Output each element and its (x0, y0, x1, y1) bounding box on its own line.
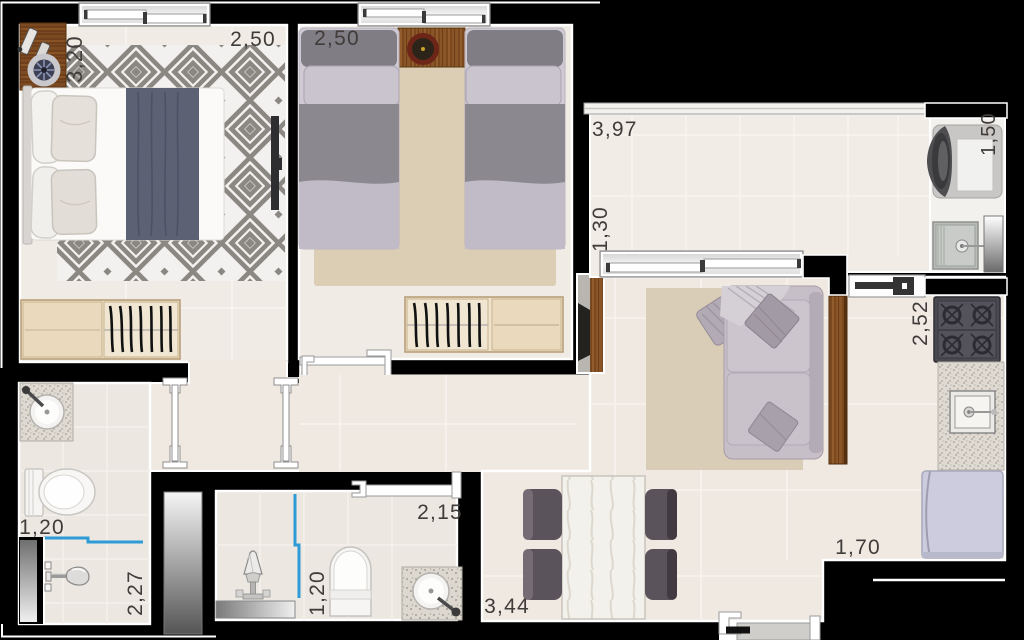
svg-text:2,52: 2,52 (909, 300, 932, 346)
svg-text:2,15: 2,15 (417, 501, 463, 524)
svg-text:2,27: 2,27 (124, 570, 147, 616)
svg-text:1,70: 1,70 (835, 536, 881, 559)
svg-text:3,44: 3,44 (484, 595, 530, 618)
svg-text:1,30: 1,30 (589, 206, 612, 252)
svg-text:3,20: 3,20 (62, 35, 87, 83)
svg-text:2,50: 2,50 (314, 27, 360, 50)
svg-text:1,50: 1,50 (978, 112, 1000, 156)
svg-text:1,20: 1,20 (19, 516, 65, 539)
svg-text:1,20: 1,20 (306, 570, 329, 616)
svg-text:2,50: 2,50 (230, 28, 276, 51)
svg-text:3,97: 3,97 (592, 118, 638, 141)
